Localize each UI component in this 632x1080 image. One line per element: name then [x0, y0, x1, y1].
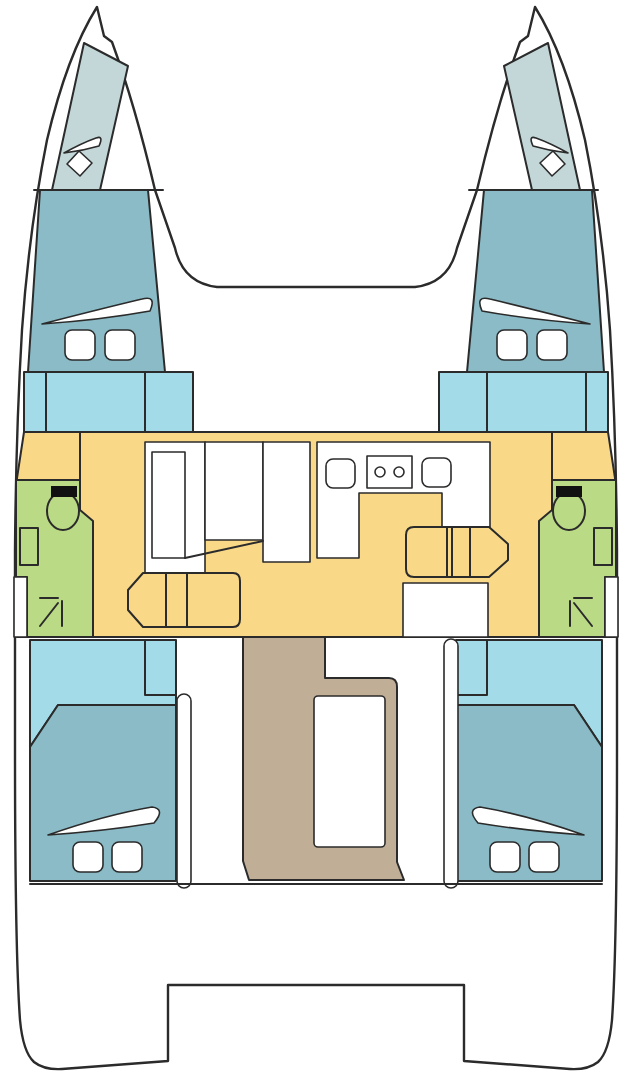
sofa-middle-section — [205, 442, 263, 540]
deck-hatch-icon — [65, 330, 95, 360]
port-head-step — [14, 577, 27, 637]
toilet-lid-icon — [51, 486, 77, 497]
port-chaise-seat — [128, 573, 240, 627]
port-sliding-door — [177, 694, 191, 888]
burner-icon — [375, 467, 385, 477]
pillow-icon — [529, 842, 559, 872]
starboard-companionway — [439, 372, 608, 432]
sink-icon — [594, 528, 612, 565]
sofa-right-section — [263, 442, 310, 562]
pillow-icon — [73, 842, 103, 872]
pillow-icon — [112, 842, 142, 872]
sink-icon — [20, 528, 38, 565]
starboard-sliding-door — [444, 639, 458, 888]
deck-hatch-icon — [537, 330, 567, 360]
galley-sink-icon — [326, 459, 355, 488]
starboard-head-step — [605, 577, 618, 637]
cockpit-table — [314, 696, 385, 847]
aft-galley-counter — [403, 583, 488, 637]
galley-sink-icon — [422, 458, 451, 487]
port-companionway — [24, 372, 193, 432]
catamaran-floor-plan — [0, 0, 632, 1080]
pillow-icon — [490, 842, 520, 872]
starboard-forward-cabin — [467, 190, 604, 372]
deck-hatch-icon — [105, 330, 135, 360]
stove-icon — [367, 456, 412, 488]
salon-floor — [17, 432, 615, 637]
port-forward-cabin — [28, 190, 165, 372]
toilet-lid-icon — [556, 486, 582, 497]
deck-hatch-icon — [497, 330, 527, 360]
burner-icon — [394, 467, 404, 477]
sofa-left-seat — [152, 452, 185, 558]
starboard-nav-seat — [406, 527, 508, 577]
